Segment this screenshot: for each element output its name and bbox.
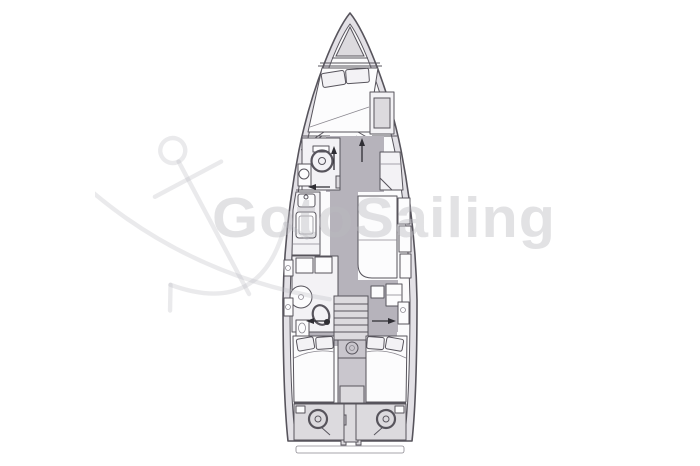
forward-head-door (336, 176, 340, 188)
forward-wardrobe (370, 92, 394, 134)
boat-floorplan-image: GotoSailing (0, 0, 700, 466)
galley-sink (298, 194, 315, 207)
salon-settee (358, 196, 411, 278)
port-aft-berth (293, 336, 334, 402)
galley (292, 192, 320, 255)
aft-head (290, 256, 340, 336)
starboard-cabinet (380, 152, 403, 190)
floorplan-drawing (0, 0, 700, 466)
starboard-aft-berth (366, 336, 407, 402)
companionway-stairs (334, 296, 368, 340)
